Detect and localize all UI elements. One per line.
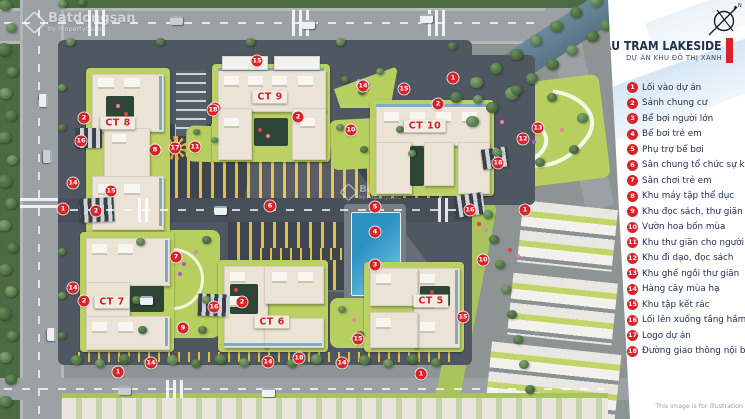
legend-item: 3Bể bơi người lớn xyxy=(627,111,745,127)
roof-unit xyxy=(92,322,107,333)
tree xyxy=(191,359,201,368)
tree xyxy=(526,73,538,84)
map-marker: 14 xyxy=(263,357,274,368)
map-marker: 1 xyxy=(113,367,124,378)
batdongsan-logo-icon xyxy=(339,183,358,202)
legend-item-number: 16 xyxy=(627,315,638,326)
legend-item-label: Khu máy tập thể dục xyxy=(642,191,734,201)
townhouse-block-ne xyxy=(517,200,618,272)
roof-unit xyxy=(298,76,313,87)
legend-item-number: 12 xyxy=(627,253,638,264)
tree xyxy=(215,354,226,364)
roof-unit xyxy=(248,76,263,87)
tree xyxy=(407,354,418,364)
building-body-ct8 xyxy=(104,128,150,180)
legend-item-number: 18 xyxy=(627,346,638,357)
legend-item-number: 7 xyxy=(627,175,638,186)
flower-bed xyxy=(352,318,356,322)
tree xyxy=(311,354,322,364)
tree xyxy=(546,59,559,71)
legend-item-label: Hàng cây mùa hạ xyxy=(642,284,720,294)
legend-item: 18Đường giao thông nội bộ xyxy=(627,344,745,360)
map-marker: 4 xyxy=(370,227,381,238)
legend-item-number: 15 xyxy=(627,299,638,310)
map-marker: 5 xyxy=(370,202,381,213)
map-marker: 1 xyxy=(448,73,459,84)
legend-item-number: 1 xyxy=(627,82,638,93)
roof-unit xyxy=(298,272,313,283)
map-marker: 2 xyxy=(237,297,248,308)
roof-unit xyxy=(230,272,245,283)
tree xyxy=(7,67,18,77)
legend-item: 4Bể bơi trẻ em xyxy=(627,127,745,143)
glass-facade xyxy=(159,178,162,226)
legend-item-number: 13 xyxy=(627,268,638,279)
map-marker: 10 xyxy=(478,255,489,266)
flower-bed xyxy=(560,128,564,132)
glass-facade xyxy=(455,270,458,344)
map-marker: 16 xyxy=(76,136,87,147)
tree xyxy=(5,374,17,385)
legend-item-label: Logo dự án xyxy=(642,331,691,341)
roof-unit xyxy=(376,274,391,285)
building-label-ct10: CT 10 xyxy=(404,120,446,133)
crosswalk xyxy=(20,194,58,208)
map-marker: 14 xyxy=(337,358,348,369)
map-marker: 14 xyxy=(68,178,79,189)
map-marker: 17 xyxy=(170,143,181,154)
car xyxy=(302,20,315,29)
legend-item-number: 10 xyxy=(627,222,638,233)
map-marker: 14 xyxy=(68,283,79,294)
map-marker: 14 xyxy=(358,81,369,92)
legend-item-number: 11 xyxy=(627,237,638,248)
legend-item-number: 9 xyxy=(627,206,638,217)
legend-item: 1Lối vào dự án xyxy=(627,80,745,96)
tree xyxy=(336,38,345,46)
map-marker: 2 xyxy=(91,206,102,217)
legend-item-label: Khu đọc sách, thư giãn xyxy=(642,207,743,217)
map-marker: 16 xyxy=(493,158,504,169)
tree xyxy=(119,354,130,364)
roof-unit xyxy=(98,78,114,89)
map-marker: 3 xyxy=(370,260,381,271)
flower-bed xyxy=(477,222,481,226)
car xyxy=(262,388,275,397)
legend-item: 16Lối lên xuống tầng hầm xyxy=(627,313,745,329)
panel-subtitle: DỰ ÁN KHU ĐÔ THỊ XANH xyxy=(626,54,722,62)
legend-list: 1Lối vào dự án2Sảnh chung cư3Bể bơi ngườ… xyxy=(627,80,745,359)
legend-item-label: Đường giao thông nội bộ xyxy=(642,346,745,356)
crosswalk xyxy=(138,198,152,222)
tree xyxy=(0,352,12,364)
map-marker: 2 xyxy=(433,99,444,110)
townhouse-block-e xyxy=(507,273,618,346)
roof-unit xyxy=(272,272,287,283)
map-marker: 15 xyxy=(106,186,117,197)
tree xyxy=(470,77,483,89)
legend-item-label: Khu đi dạo, đọc sách xyxy=(642,253,733,263)
roof-unit xyxy=(92,244,107,255)
car xyxy=(170,16,183,25)
road-centerline xyxy=(38,4,40,414)
legend-item: 15Khu tập kết rác xyxy=(627,297,745,313)
tree xyxy=(136,238,145,246)
legend-item: 9Khu đọc sách, thư giãn xyxy=(627,204,745,220)
footnote: This image is for illustration xyxy=(655,403,743,410)
tree xyxy=(450,92,462,103)
building-body-ct10 xyxy=(376,142,412,194)
road-centerline xyxy=(4,388,604,390)
building-label-ct8: CT 8 xyxy=(100,117,135,130)
building-label-ct7: CT 7 xyxy=(94,296,129,309)
tree xyxy=(0,88,12,100)
legend-item-label: Lối vào dự án xyxy=(642,83,701,93)
tree xyxy=(359,355,370,365)
flower-bed xyxy=(194,250,198,254)
building-courtyard-ct9 xyxy=(254,118,288,146)
tree xyxy=(550,21,563,33)
roof-unit xyxy=(124,184,140,195)
canopy xyxy=(274,56,320,70)
roof-unit xyxy=(224,118,239,128)
car xyxy=(39,94,48,107)
map-marker: 11 xyxy=(190,142,201,153)
flower-bed xyxy=(484,228,488,232)
legend-item: 12Khu đi dạo, đọc sách xyxy=(627,251,745,267)
tree xyxy=(202,236,211,244)
legend-item-number: 3 xyxy=(627,113,638,124)
tree xyxy=(466,116,479,128)
map-marker: 2 xyxy=(293,112,304,123)
legend-item-label: Vườn hoa bốn mùa xyxy=(642,222,725,232)
legend-item-label: Sân chung tổ chức sự kiện xyxy=(642,160,745,170)
map-marker: 1 xyxy=(520,205,531,216)
flower-bed xyxy=(266,134,270,138)
map-marker: 9 xyxy=(178,323,189,334)
tree xyxy=(138,326,147,334)
tree xyxy=(489,235,499,244)
tree xyxy=(0,132,11,144)
parking-ticks-mid xyxy=(252,248,348,260)
car xyxy=(140,296,153,305)
flower-bed xyxy=(182,262,186,266)
legend-item-number: 8 xyxy=(627,191,638,202)
map-marker: 13 xyxy=(533,123,544,134)
tree xyxy=(586,31,599,43)
tree xyxy=(570,7,582,18)
legend-item-number: 5 xyxy=(627,144,638,155)
legend-item: 7Sân chơi trẻ em xyxy=(627,173,745,189)
roof-unit xyxy=(272,76,287,87)
tree xyxy=(167,355,178,365)
legend-item-label: Bể bơi người lớn xyxy=(642,114,713,124)
flower-bed xyxy=(508,248,512,252)
tree xyxy=(239,358,249,367)
compass-icon: N xyxy=(700,1,744,39)
flower-bed xyxy=(178,272,182,276)
tree xyxy=(58,0,67,8)
glass-facade xyxy=(165,240,168,282)
legend-item-label: Khu tập kết rác xyxy=(642,300,710,310)
roof-unit xyxy=(224,76,239,87)
flower-bed xyxy=(124,112,128,116)
road-centerline xyxy=(4,22,544,24)
map-marker: 2 xyxy=(79,296,90,307)
legend-item-label: Sân chơi trẻ em xyxy=(642,176,712,186)
tree xyxy=(0,396,12,408)
tree xyxy=(6,23,17,33)
roof-unit xyxy=(118,244,133,255)
building-body-ct9 xyxy=(218,108,252,160)
map-marker: 15 xyxy=(252,56,263,67)
tree xyxy=(501,285,511,294)
tree xyxy=(193,129,200,135)
tree xyxy=(66,38,75,46)
legend-item-label: Khu thư giãn cho người già xyxy=(642,238,745,248)
roof-unit xyxy=(112,134,126,144)
map-marker: 1 xyxy=(58,204,69,215)
legend-item-label: Khu ghế ngồi thư giãn xyxy=(642,269,739,279)
glass-facade xyxy=(165,318,168,346)
legend-item: 2Sảnh chung cư xyxy=(627,96,745,112)
flower-bed xyxy=(258,128,262,132)
forest-top xyxy=(0,0,640,8)
tree xyxy=(7,155,18,165)
flower-bed xyxy=(500,120,504,124)
panel-title: BAU TRAM LAKESIDE xyxy=(596,39,722,53)
tree xyxy=(71,355,82,365)
map-marker: 16 xyxy=(209,302,220,313)
tree xyxy=(0,220,11,232)
tree xyxy=(198,326,207,334)
map-marker: 12 xyxy=(518,134,529,145)
car xyxy=(118,386,131,395)
building-body-ct10 xyxy=(424,142,454,186)
roof-unit xyxy=(376,318,391,329)
tree xyxy=(577,113,588,123)
tree xyxy=(486,102,498,113)
crosswalk xyxy=(438,198,452,222)
map-marker: 16 xyxy=(465,205,476,216)
legend-item: 10Vườn hoa bốn mùa xyxy=(627,220,745,236)
crosswalk xyxy=(88,10,108,36)
building-label-ct9: CT 9 xyxy=(252,91,287,104)
roof-unit xyxy=(420,322,435,333)
legend-item: 5Phụ trợ bể bơi xyxy=(627,142,745,158)
tree xyxy=(246,38,255,46)
legend-item-number: 6 xyxy=(627,160,638,171)
car xyxy=(420,14,433,23)
map-marker: 15 xyxy=(399,84,410,95)
legend-item: 8Khu máy tập thể dục xyxy=(627,189,745,205)
masterplan-screenshot: Batdongsan by PropertyGuru Batdongsan by… xyxy=(0,0,745,419)
tree xyxy=(5,198,17,209)
map-marker: 18 xyxy=(294,353,305,364)
building-label-ct5: CT 5 xyxy=(413,295,448,308)
tree xyxy=(513,335,523,344)
map-marker: 14 xyxy=(146,358,157,369)
crosswalk xyxy=(166,380,186,398)
tree xyxy=(510,49,523,61)
tree xyxy=(95,359,105,368)
tree xyxy=(530,35,542,46)
car xyxy=(47,328,56,341)
legend-item-number: 17 xyxy=(627,330,638,341)
glass-facade xyxy=(159,76,162,130)
legend-item-label: Bể bơi trẻ em xyxy=(642,129,702,139)
tree xyxy=(566,45,578,56)
townhouse-row-bottom xyxy=(62,398,608,419)
map-marker: 1 xyxy=(416,369,427,380)
tree xyxy=(0,264,12,276)
legend-item-number: 14 xyxy=(627,284,638,295)
flower-bed xyxy=(532,140,536,144)
map-marker: 18 xyxy=(208,105,219,116)
legend-item: 14Hàng cây mùa hạ xyxy=(627,282,745,298)
legend-item: 17Logo dự án xyxy=(627,328,745,344)
flower-bed xyxy=(430,290,434,294)
legend-item-label: Lối lên xuống tầng hầm xyxy=(642,315,745,325)
aerial-masterplan-map: Batdongsan by PropertyGuru Batdongsan by… xyxy=(0,0,640,419)
tree xyxy=(5,286,17,297)
tree xyxy=(383,359,393,368)
tree xyxy=(7,243,18,253)
roof-unit xyxy=(124,78,140,89)
accent-bar xyxy=(726,38,733,63)
compass-north-label: N xyxy=(738,3,742,9)
map-marker: 10 xyxy=(346,125,357,136)
legend-item: 6Sân chung tổ chức sự kiện xyxy=(627,158,745,174)
tree xyxy=(7,331,18,341)
map-marker: 15 xyxy=(353,334,364,345)
glass-facade xyxy=(224,343,322,346)
car xyxy=(214,206,227,215)
tree xyxy=(211,137,218,143)
tree xyxy=(156,38,165,46)
flower-bed xyxy=(116,104,120,108)
building-label-ct6: CT 6 xyxy=(254,316,289,329)
legend-item-label: Phụ trợ bể bơi xyxy=(642,145,704,155)
map-marker: 6 xyxy=(265,201,276,212)
tree xyxy=(448,42,457,50)
tree xyxy=(495,260,505,269)
map-marker: 7 xyxy=(171,252,182,263)
roof-unit xyxy=(384,112,399,123)
legend-item: 11Khu thư giãn cho người già xyxy=(627,235,745,251)
legend-item-number: 4 xyxy=(627,129,638,140)
legend-item-label: Sảnh chung cư xyxy=(642,98,707,108)
tree xyxy=(511,85,522,95)
legend-item-number: 2 xyxy=(627,98,638,109)
tree xyxy=(431,358,441,367)
tree xyxy=(5,110,17,121)
roof-unit xyxy=(118,322,133,333)
car xyxy=(43,150,52,163)
map-marker: 15 xyxy=(458,312,469,323)
roof-unit xyxy=(420,274,435,285)
flower-bed xyxy=(516,254,520,258)
map-marker: 8 xyxy=(150,145,161,156)
legend-item: 13Khu ghế ngồi thư giãn xyxy=(627,266,745,282)
tree xyxy=(0,0,12,11)
flower-bed xyxy=(234,288,238,292)
map-marker: 2 xyxy=(79,113,90,124)
tree xyxy=(490,63,502,74)
